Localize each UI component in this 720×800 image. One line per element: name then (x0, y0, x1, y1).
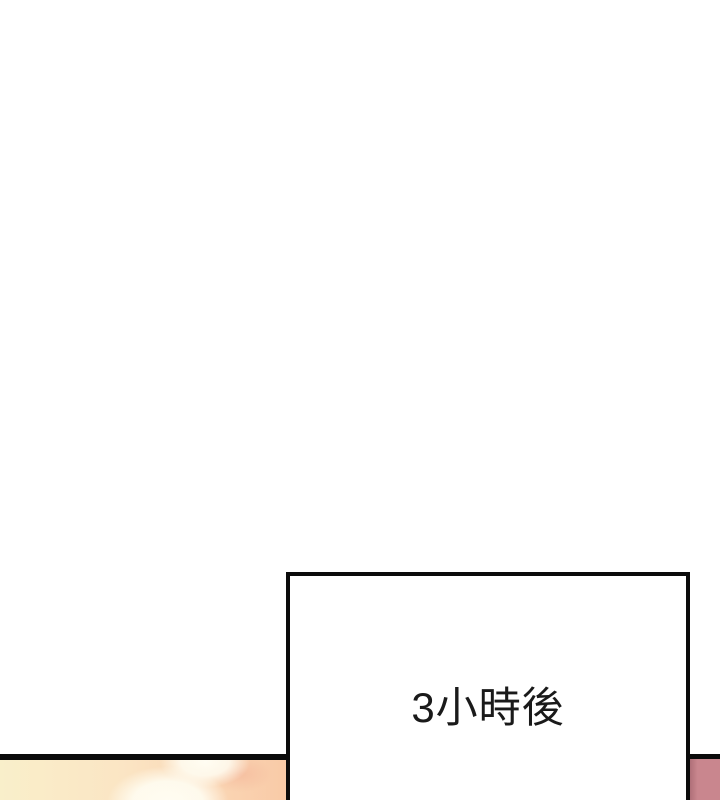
time-skip-caption-box: 3小時後 (286, 572, 690, 800)
comic-page: 3小時後 (0, 0, 720, 800)
time-skip-caption-text: 3小時後 (411, 576, 564, 730)
next-panel-artwork-left (0, 760, 292, 800)
next-panel-artwork-right (688, 759, 720, 800)
